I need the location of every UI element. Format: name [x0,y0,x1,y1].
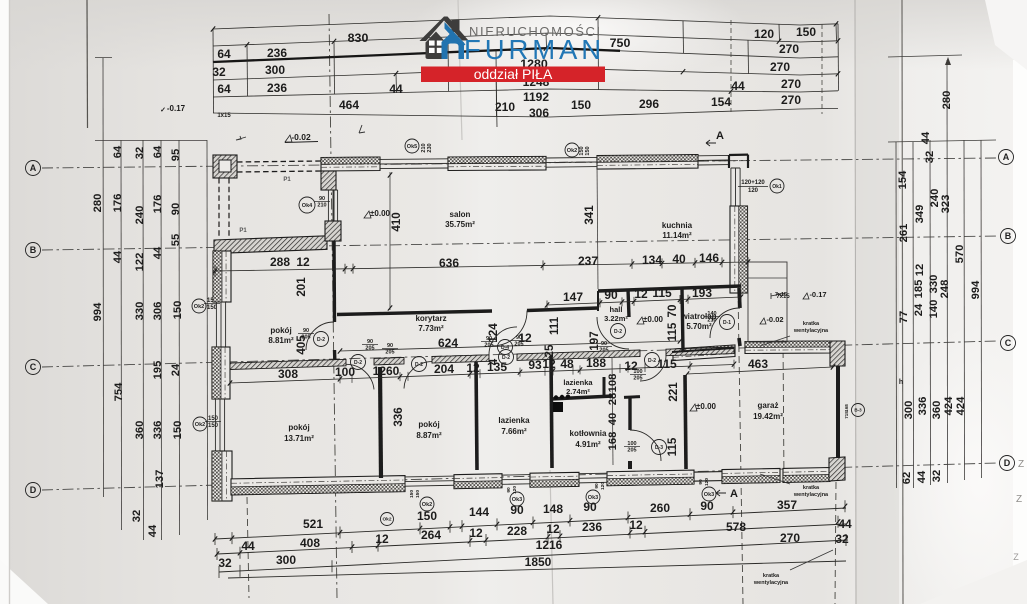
svg-text:90: 90 [604,288,618,302]
svg-text:Ok2: Ok2 [422,502,432,508]
svg-text:garaż: garaż [758,401,779,410]
svg-text:12: 12 [542,357,556,371]
svg-text:h: h [899,379,903,386]
svg-text:120: 120 [600,482,606,490]
svg-text:188: 188 [586,356,606,370]
svg-text:Z: Z [1016,494,1022,505]
svg-text:11.14m²: 11.14m² [662,231,692,240]
svg-text:4.91m²: 4.91m² [575,440,601,449]
svg-text:Ok3: Ok3 [588,495,598,501]
svg-text:137: 137 [154,470,166,489]
svg-text:Ok2: Ok2 [195,422,205,428]
svg-text:336: 336 [392,407,405,427]
svg-text:35.75m²: 35.75m² [445,220,475,229]
svg-text:D-2: D-2 [648,358,656,364]
svg-text:95: 95 [170,149,182,161]
svg-text:32: 32 [134,147,146,159]
svg-text:Ok3: Ok3 [512,497,522,503]
svg-text:70: 70 [666,305,679,318]
svg-text:176: 176 [112,194,124,213]
svg-text:pokój: pokój [288,423,309,432]
svg-text:994: 994 [92,302,104,321]
svg-text:154: 154 [897,170,909,189]
svg-text:624: 624 [438,336,458,350]
svg-text:1216: 1216 [536,538,563,552]
svg-text:205: 205 [514,342,523,348]
svg-text:150: 150 [571,98,591,112]
svg-text:349: 349 [914,205,926,224]
svg-text:D-3: D-3 [655,445,663,451]
svg-text:280: 280 [92,194,104,213]
svg-text:90: 90 [510,503,524,517]
svg-text:D: D [30,485,37,495]
svg-text:204: 204 [434,362,454,376]
svg-text:Ok1: Ok1 [772,184,782,190]
svg-text:44: 44 [920,131,932,144]
svg-text:134: 134 [642,253,662,267]
svg-text:lazienka: lazienka [563,378,593,387]
svg-text:±0.00: ±0.00 [370,209,391,218]
svg-text:90: 90 [319,196,325,202]
svg-text:237: 237 [578,254,598,268]
svg-text:115: 115 [666,437,679,456]
svg-text:270: 270 [779,42,799,56]
svg-text:150: 150 [172,301,184,320]
svg-text:108: 108 [607,374,619,393]
svg-text:201: 201 [295,277,308,297]
svg-text:62: 62 [901,472,913,484]
svg-text:830: 830 [348,31,369,45]
svg-text:120: 120 [754,27,774,41]
svg-text:25: 25 [543,344,556,357]
svg-text:44: 44 [152,246,164,259]
svg-text:kratka: kratka [763,573,780,579]
svg-text:Ok2: Ok2 [194,304,204,310]
svg-text:24: 24 [913,303,925,316]
svg-text:410: 410 [390,212,403,231]
svg-text:A: A [730,488,738,500]
svg-text:✓: ✓ [160,107,166,114]
svg-text:D-2: D-2 [502,355,510,361]
svg-text:40: 40 [672,252,686,266]
svg-text:77: 77 [898,311,910,323]
svg-text:wentylacyjna: wentylacyjna [793,328,829,334]
svg-text:lazienka: lazienka [498,416,530,425]
svg-text:306: 306 [529,106,549,120]
svg-text:150: 150 [409,490,415,498]
svg-text:120: 120 [512,486,518,494]
svg-text:341: 341 [583,205,596,225]
svg-text:236: 236 [582,520,602,534]
svg-text:120: 120 [748,188,759,194]
svg-text:464: 464 [339,98,359,112]
svg-text:-0.17: -0.17 [167,104,186,113]
svg-text:D-2: D-2 [354,360,362,366]
svg-text:260: 260 [650,501,670,515]
svg-text:7.73m²: 7.73m² [418,324,444,333]
svg-text:12: 12 [466,361,480,375]
svg-text:93: 93 [528,358,542,372]
svg-text:64: 64 [217,82,231,96]
svg-text:kotłownia: kotłownia [570,429,607,438]
svg-text:205: 205 [385,350,394,356]
svg-text:7.66m²: 7.66m² [501,427,527,436]
svg-text:205: 205 [365,346,374,352]
svg-text:154: 154 [711,95,731,109]
svg-text:144: 144 [469,505,489,519]
svg-text:150: 150 [208,416,219,422]
svg-text:360: 360 [931,401,943,420]
svg-text:750: 750 [610,36,631,50]
svg-text:994: 994 [970,280,982,299]
svg-text:168: 168 [607,432,619,451]
svg-text:115: 115 [666,322,679,341]
svg-text:90: 90 [367,339,373,345]
svg-text:pokój: pokój [270,326,291,335]
svg-text:270: 270 [781,93,801,107]
svg-text:205: 205 [633,376,642,382]
svg-text:12: 12 [629,518,643,532]
svg-text:308: 308 [278,367,298,381]
svg-text:32: 32 [218,556,232,570]
svg-text:168: 168 [844,404,849,412]
svg-text:P1: P1 [239,228,247,234]
svg-text:230: 230 [427,143,433,152]
svg-text:120+120: 120+120 [741,180,765,186]
svg-text:111: 111 [548,316,561,335]
svg-text:19.42m²: 19.42m² [753,412,783,421]
svg-text:-0.02: -0.02 [766,315,783,324]
svg-text:715: 715 [844,411,849,419]
svg-text:32: 32 [131,510,143,522]
svg-text:140: 140 [928,300,940,319]
svg-text:120: 120 [704,478,710,486]
svg-text:8.81m²: 8.81m² [268,336,294,345]
svg-text:A: A [716,130,724,142]
svg-text:Ok2: Ok2 [567,148,577,154]
svg-text:12: 12 [546,522,560,536]
svg-text:4: 4 [487,358,500,365]
svg-text:150: 150 [796,25,816,39]
svg-text:147: 147 [563,290,583,304]
svg-text:hall: hall [610,305,623,314]
svg-text:228: 228 [507,524,527,538]
svg-text:Ok5: Ok5 [407,144,417,150]
svg-text:185: 185 [913,280,925,299]
svg-text:205: 205 [484,343,493,349]
svg-text:B: B [30,245,37,255]
svg-text:32: 32 [835,532,849,546]
svg-text:kuchnia: kuchnia [662,221,693,230]
svg-text:12: 12 [914,264,926,276]
svg-text:210: 210 [495,100,515,114]
svg-text:24: 24 [170,363,182,376]
svg-text:64: 64 [217,47,231,61]
svg-text:150: 150 [208,423,219,429]
svg-text:323: 323 [940,195,952,214]
svg-text:12: 12 [296,255,310,269]
svg-text:636: 636 [439,256,459,270]
svg-text:wentylacyjna: wentylacyjna [753,580,789,586]
svg-text:115: 115 [652,286,672,300]
svg-text:32: 32 [931,470,943,482]
svg-text:2.74m²: 2.74m² [566,387,590,396]
svg-text:248: 248 [939,280,951,299]
svg-text:8.87m²: 8.87m² [416,431,442,440]
svg-text:115: 115 [657,357,677,371]
svg-text:100: 100 [627,441,636,447]
svg-text:Z: Z [1013,552,1019,562]
svg-text:D-4: D-4 [501,345,509,351]
svg-text:236: 236 [267,46,287,60]
svg-text:Ok3: Ok3 [704,492,714,498]
svg-text:kratka: kratka [803,321,820,327]
svg-text:754: 754 [113,382,125,401]
svg-text:578: 578 [726,520,746,534]
svg-text:336: 336 [152,421,164,440]
svg-text:48: 48 [560,357,574,371]
svg-text:64: 64 [152,145,164,158]
svg-text:122: 122 [134,253,146,272]
svg-text:463: 463 [748,357,768,371]
svg-text:salon: salon [450,210,471,219]
svg-text:424: 424 [943,396,955,415]
svg-text:90: 90 [601,341,607,347]
svg-text:150: 150 [415,490,421,498]
svg-text:44: 44 [838,517,852,531]
svg-text:A: A [30,163,37,173]
svg-text:12: 12 [634,287,648,301]
svg-text:B: B [1005,231,1012,241]
svg-text:44: 44 [389,82,403,96]
svg-text:236: 236 [267,81,287,95]
svg-text:oddział PIŁA: oddział PIŁA [474,66,553,82]
svg-text:C: C [30,362,37,372]
svg-text:Ok4: Ok4 [302,203,313,209]
svg-text:205: 205 [301,335,310,341]
svg-text:357: 357 [777,498,797,512]
svg-text:pokój: pokój [418,420,439,429]
svg-text:P1: P1 [283,177,291,183]
svg-text:270: 270 [770,60,790,74]
svg-text:408: 408 [300,536,320,550]
svg-text:90: 90 [594,483,600,489]
svg-text:270: 270 [781,77,801,91]
svg-text:148: 148 [543,502,563,516]
svg-text:D-2: D-2 [614,329,622,335]
svg-text:korytarz: korytarz [415,314,446,323]
svg-text:221: 221 [667,382,680,402]
svg-text:140: 140 [707,311,716,317]
svg-text:28: 28 [607,393,619,405]
svg-text:40: 40 [607,413,619,425]
svg-text:44: 44 [916,470,928,483]
svg-text:44: 44 [112,250,124,263]
svg-text:90: 90 [506,487,512,493]
svg-text:44: 44 [731,79,745,93]
svg-text:D-1: D-1 [723,320,731,326]
svg-text:A: A [1003,152,1010,162]
svg-text:D: D [1004,458,1011,468]
svg-text:7x15: 7x15 [775,292,787,298]
svg-text:288: 288 [270,255,290,269]
svg-text:90: 90 [387,343,393,349]
svg-text:1x15: 1x15 [217,113,231,119]
svg-text:261: 261 [898,224,910,243]
svg-text:195: 195 [152,361,164,380]
svg-text:±0.00: ±0.00 [643,315,664,324]
svg-text:±0.00: ±0.00 [696,402,717,411]
svg-text:90: 90 [698,479,704,485]
svg-text:280: 280 [941,91,953,110]
svg-text:kratka: kratka [803,485,820,491]
svg-text:360: 360 [134,421,146,440]
svg-text:150: 150 [172,421,184,440]
svg-text:wentylacyjna: wentylacyjna [793,492,829,498]
svg-text:90: 90 [303,328,309,334]
svg-text:44: 44 [147,524,159,537]
svg-text:55: 55 [170,234,182,246]
svg-text:12: 12 [375,532,389,546]
svg-text:424: 424 [955,396,967,415]
svg-text:D-2: D-2 [415,362,423,368]
svg-text:13.71m²: 13.71m² [284,434,314,443]
svg-text:3.22m²: 3.22m² [604,314,628,323]
svg-text:150: 150 [585,146,591,155]
svg-text:205: 205 [599,348,608,354]
svg-text:1192: 1192 [523,90,549,104]
svg-text:336: 336 [917,397,929,416]
svg-text:330: 330 [134,302,146,321]
svg-text:100: 100 [633,369,642,375]
svg-text:306: 306 [152,302,164,321]
svg-text:90: 90 [486,336,492,342]
svg-text:90: 90 [583,500,597,514]
svg-text:193: 193 [692,286,712,300]
svg-text:90: 90 [516,335,522,341]
svg-text:570: 570 [954,245,966,264]
svg-text:1850: 1850 [525,555,552,569]
svg-text:270: 270 [780,531,800,545]
svg-text:240: 240 [134,206,146,225]
svg-text:-0.02: -0.02 [291,132,311,142]
svg-text:32: 32 [924,151,936,163]
svg-text:64: 64 [112,145,124,158]
svg-text:FURMAN: FURMAN [464,34,605,65]
svg-text:C: C [1005,338,1012,348]
svg-text:300: 300 [265,63,285,77]
svg-text:205: 205 [627,448,636,454]
svg-text:-0.17: -0.17 [809,290,826,299]
svg-text:264: 264 [421,528,441,542]
svg-text:1260: 1260 [373,364,400,378]
svg-text:12: 12 [469,526,483,540]
svg-text:44: 44 [241,539,255,553]
svg-text:300: 300 [903,401,915,420]
svg-text:146: 146 [699,251,719,265]
svg-text:32: 32 [212,65,226,79]
svg-text:210: 210 [707,318,716,324]
svg-text:B-3: B-3 [854,408,862,413]
svg-text:Ok2: Ok2 [382,517,391,523]
svg-text:300: 300 [276,553,296,567]
svg-text:D-2: D-2 [317,337,325,343]
svg-text:90: 90 [170,203,182,215]
svg-text:296: 296 [639,97,659,111]
svg-text:176: 176 [152,195,164,214]
svg-text:521: 521 [303,517,323,531]
svg-text:Z: Z [1018,459,1024,470]
svg-text:210: 210 [317,203,326,209]
